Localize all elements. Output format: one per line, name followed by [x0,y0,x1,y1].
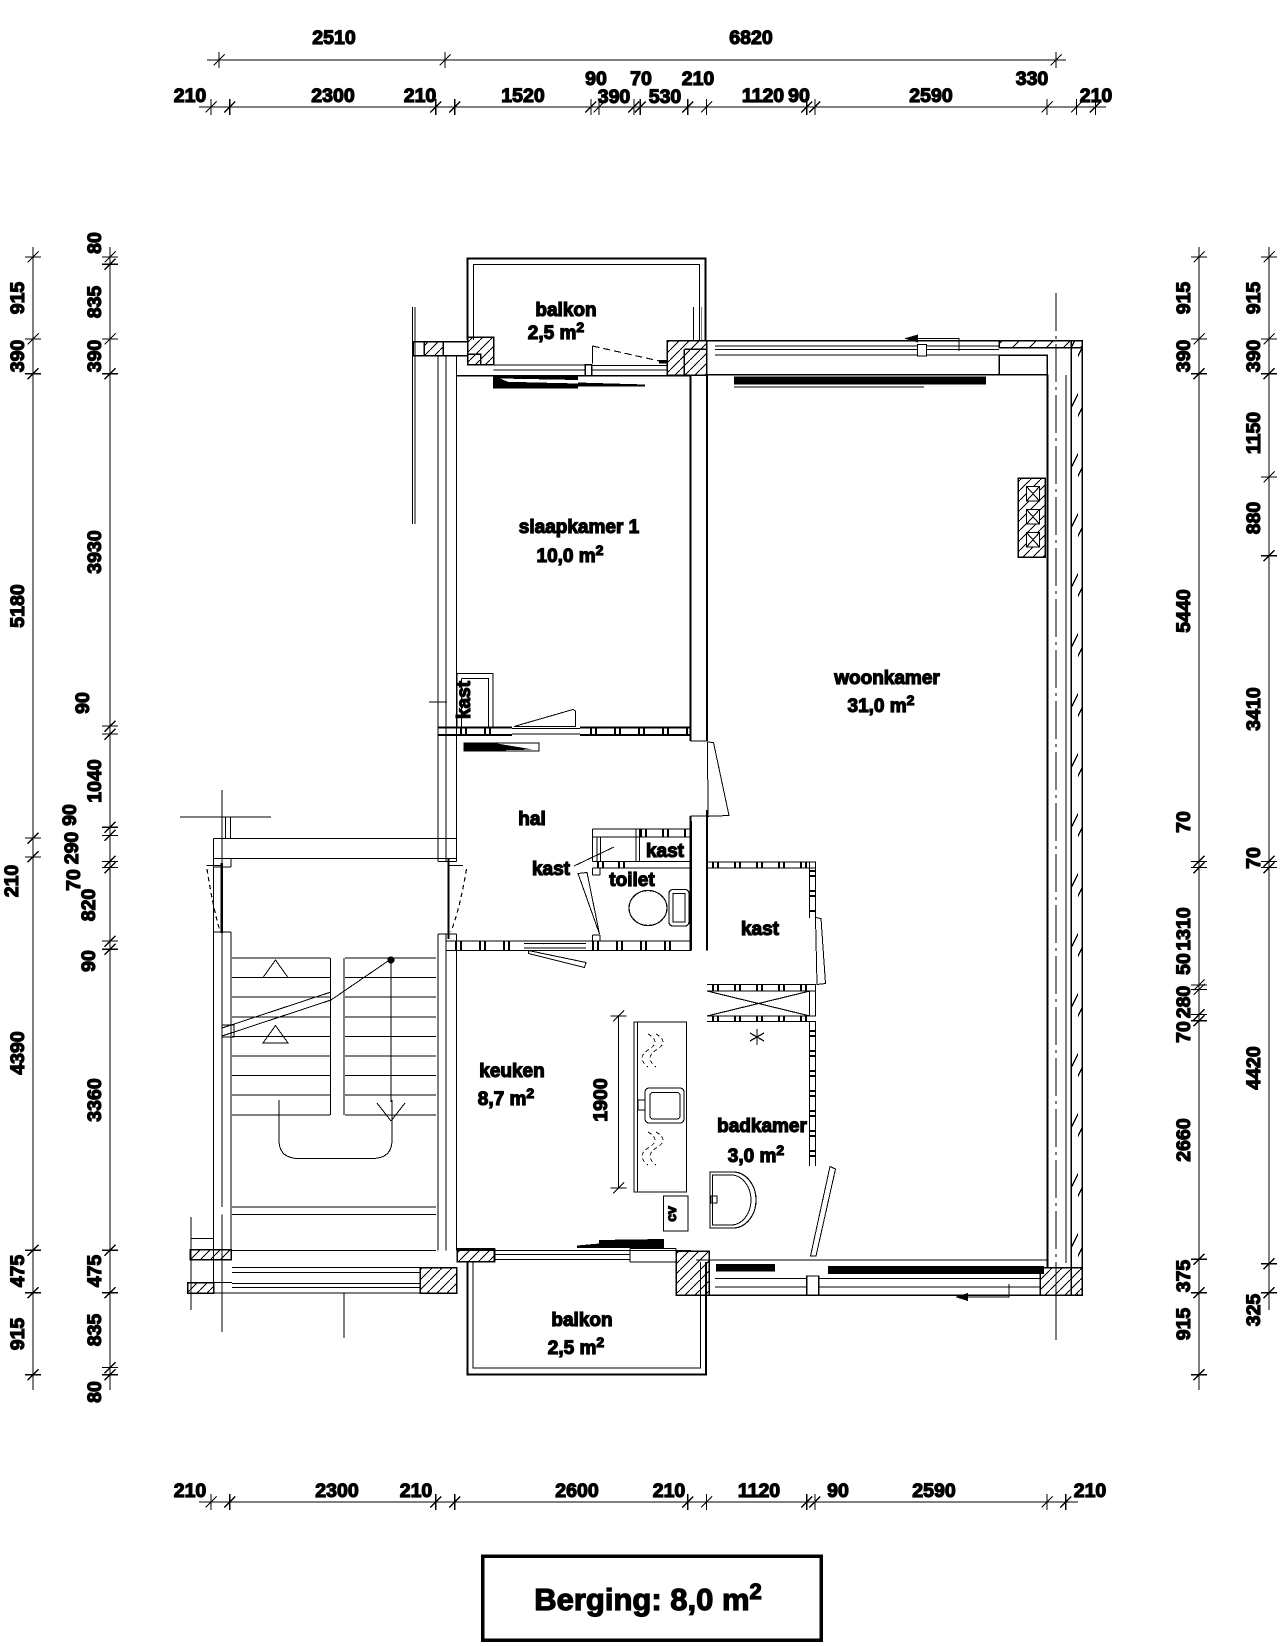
svg-text:390: 390 [1243,340,1265,373]
svg-text:kast: kast [454,680,475,719]
svg-text:6820: 6820 [729,27,773,49]
svg-text:90: 90 [72,692,94,714]
svg-text:1900: 1900 [590,1078,612,1122]
svg-text:915: 915 [7,1318,29,1351]
svg-text:cv: cv [663,1206,679,1222]
svg-text:210: 210 [1074,1480,1107,1502]
svg-text:kast: kast [646,841,685,862]
svg-text:hal: hal [518,809,545,830]
svg-text:slaapkamer 1: slaapkamer 1 [519,517,640,538]
svg-text:80: 80 [84,1381,106,1403]
svg-text:325: 325 [1243,1294,1265,1327]
svg-text:390: 390 [7,340,29,373]
svg-text:80: 80 [84,232,106,254]
svg-text:390: 390 [598,86,631,108]
svg-text:210: 210 [174,85,207,107]
svg-text:70: 70 [63,869,85,891]
svg-text:Berging: 8,0 m2: Berging: 8,0 m2 [534,1579,762,1617]
svg-text:5440: 5440 [1173,589,1195,633]
svg-text:2660: 2660 [1173,1118,1195,1162]
svg-text:3360: 3360 [84,1078,106,1122]
svg-text:5180: 5180 [7,584,29,628]
svg-text:90: 90 [827,1480,849,1502]
svg-text:210: 210 [1080,85,1113,107]
svg-text:3410: 3410 [1243,687,1265,731]
svg-text:390: 390 [84,340,106,373]
svg-text:70: 70 [1173,811,1195,833]
svg-text:330: 330 [1016,68,1049,90]
svg-text:835: 835 [84,286,106,319]
svg-text:880: 880 [1243,502,1265,535]
svg-text:210: 210 [174,1480,207,1502]
svg-text:3,0 m2: 3,0 m2 [728,1142,785,1167]
svg-text:90: 90 [788,85,810,107]
svg-text:4390: 4390 [7,1031,29,1075]
svg-text:balkon: balkon [535,300,596,321]
svg-text:1120: 1120 [742,85,784,107]
svg-text:210: 210 [1,865,23,898]
svg-text:2,5 m2: 2,5 m2 [548,1334,605,1359]
svg-text:390: 390 [1173,340,1195,373]
svg-text:1040: 1040 [84,759,106,803]
svg-text:8,7 m2: 8,7 m2 [478,1085,535,1110]
svg-text:835: 835 [84,1314,106,1347]
svg-text:90: 90 [78,950,100,972]
svg-text:2510: 2510 [312,27,356,49]
svg-text:50: 50 [1173,953,1195,975]
svg-text:toilet: toilet [609,870,655,891]
svg-text:475: 475 [84,1255,106,1288]
svg-text:70: 70 [1243,847,1265,869]
svg-text:280: 280 [1173,986,1195,1019]
svg-text:2590: 2590 [912,1480,956,1502]
svg-text:2300: 2300 [311,85,355,107]
svg-text:keuken: keuken [479,1061,544,1082]
svg-text:375: 375 [1173,1260,1195,1293]
svg-text:balkon: balkon [551,1310,612,1331]
svg-text:10,0 m2: 10,0 m2 [537,542,604,567]
svg-text:210: 210 [400,1480,433,1502]
svg-text:2600: 2600 [555,1480,599,1502]
svg-text:1310: 1310 [1173,907,1195,951]
svg-text:820: 820 [78,889,100,922]
svg-text:4420: 4420 [1243,1046,1265,1090]
svg-text:2,5 m2: 2,5 m2 [528,319,585,344]
svg-text:915: 915 [1243,282,1265,315]
svg-text:70: 70 [1173,1021,1195,1043]
svg-text:915: 915 [1173,1308,1195,1341]
svg-text:290: 290 [61,832,83,865]
svg-text:915: 915 [7,282,29,315]
svg-text:31,0 m2: 31,0 m2 [848,692,915,717]
svg-text:90: 90 [59,804,81,826]
svg-text:210: 210 [404,85,437,107]
svg-text:2590: 2590 [909,85,953,107]
svg-text:woonkamer: woonkamer [833,668,940,689]
svg-text:2300: 2300 [315,1480,359,1502]
svg-text:1520: 1520 [501,85,545,107]
svg-text:530: 530 [649,86,682,108]
svg-text:210: 210 [653,1480,686,1502]
svg-text:badkamer: badkamer [717,1116,807,1137]
svg-text:kast: kast [741,919,780,940]
svg-text:915: 915 [1173,282,1195,315]
svg-text:1120: 1120 [738,1480,780,1502]
svg-text:3930: 3930 [84,530,106,574]
svg-text:475: 475 [7,1255,29,1288]
svg-text:1150: 1150 [1243,412,1265,454]
svg-text:kast: kast [532,859,571,880]
svg-text:210: 210 [682,68,715,90]
